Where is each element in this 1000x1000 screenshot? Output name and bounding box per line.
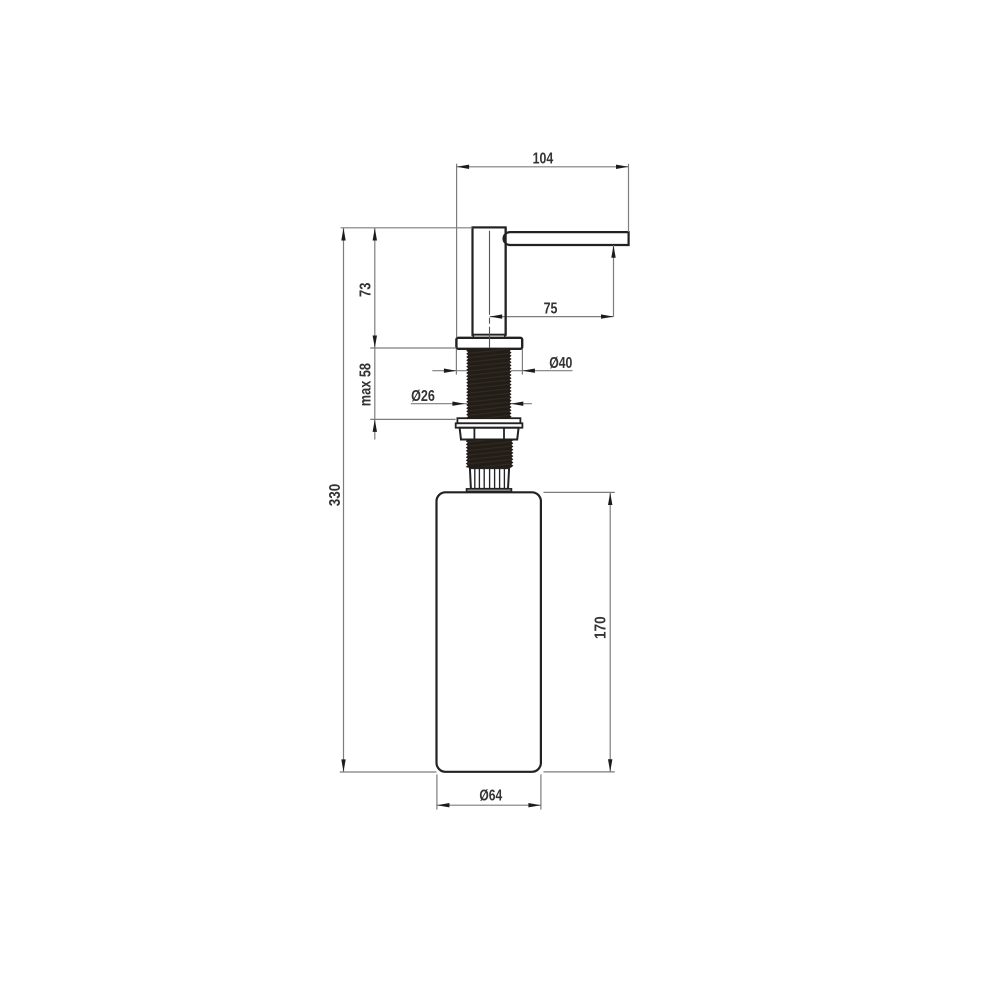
svg-text:Ø40: Ø40 [549, 355, 572, 372]
svg-text:75: 75 [544, 301, 558, 318]
svg-text:Ø64: Ø64 [479, 788, 502, 805]
svg-text:170: 170 [593, 616, 610, 639]
svg-text:max 58: max 58 [358, 363, 375, 406]
svg-text:Ø26: Ø26 [411, 388, 435, 405]
svg-text:73: 73 [357, 283, 374, 297]
svg-text:330: 330 [327, 484, 344, 507]
svg-text:104: 104 [533, 150, 554, 167]
